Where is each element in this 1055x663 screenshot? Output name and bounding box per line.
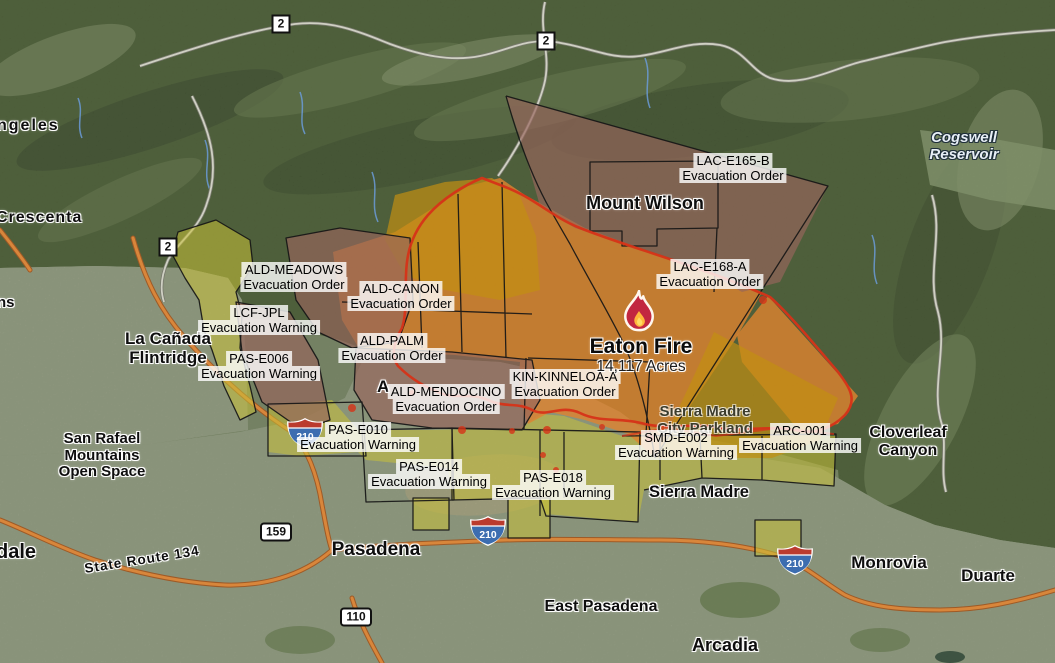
place-label-cogswell-line2: Reservoir: [929, 147, 998, 164]
place-label-crescenta: Crescenta: [0, 209, 82, 227]
place-label-san-rafael-line2: Mountains: [59, 448, 146, 465]
zone-label-pas-e014[interactable]: PAS-E014 Evacuation Warning: [368, 459, 490, 489]
zone-label-lac-e165-b[interactable]: LAC-E165-B Evacuation Order: [679, 153, 786, 183]
place-label-san-rafael-line1: San Rafael: [59, 431, 146, 448]
place-label-san-rafael-line3: Open Space: [59, 464, 146, 481]
zone-label-pas-e018[interactable]: PAS-E018 Evacuation Warning: [492, 470, 614, 500]
zone-label-ald-meadows[interactable]: ALD-MEADOWS Evacuation Order: [240, 262, 347, 292]
zone-label-pas-e010[interactable]: PAS-E010 Evacuation Warning: [297, 422, 419, 452]
shield-i210-2: 210: [469, 515, 507, 547]
fire-marker[interactable]: [620, 290, 658, 337]
zone-label-pas-e006[interactable]: PAS-E006 Evacuation Warning: [198, 351, 320, 381]
flame-icon: [620, 290, 658, 332]
place-label-angeles: ngeles: [0, 117, 60, 135]
place-label-sierra-madre: Sierra Madre: [649, 483, 749, 501]
place-label-cogswell-line1: Cogswell: [929, 130, 998, 147]
place-label-east-pasadena: East Pasadena: [545, 598, 658, 616]
zone-label-ald-mendocino[interactable]: ALD-MENDOCINO Evacuation Order: [388, 384, 505, 414]
shield-i210-3: 210: [776, 544, 814, 576]
zone-label-smd-e002[interactable]: SMD-E002 Evacuation Warning: [615, 430, 737, 460]
fire-acres: 14,117 Acres: [590, 358, 693, 376]
place-label-cloverleaf-line2: Canyon: [869, 442, 946, 460]
shield-sr159: 159: [260, 523, 292, 542]
shield-route2-1: 2: [272, 15, 291, 34]
fire-title: Eaton Fire: [590, 336, 693, 358]
map-canvas[interactable]: 210 210 210 2 2 2 159 110 ngeles Crescen…: [0, 0, 1055, 663]
zone-label-lac-e168-a[interactable]: LAC-E168-A Evacuation Order: [656, 259, 763, 289]
zone-label-arc-001[interactable]: ARC-001 Evacuation Warning: [739, 423, 861, 453]
svg-text:210: 210: [479, 530, 497, 541]
shield-route2-3: 2: [159, 238, 178, 257]
place-label-mount-wilson: Mount Wilson: [586, 193, 704, 213]
place-label-cloverleaf-line1: Cloverleaf: [869, 424, 946, 442]
place-label-duarte: Duarte: [961, 566, 1015, 585]
shield-route2-2: 2: [537, 32, 556, 51]
zone-label-lcf-jpl[interactable]: LCF-JPL Evacuation Warning: [198, 305, 320, 335]
place-label-glendale: dale: [0, 541, 36, 563]
zone-label-ald-palm[interactable]: ALD-PALM Evacuation Order: [338, 333, 445, 363]
fire-label: Eaton Fire 14,117 Acres: [590, 336, 693, 376]
place-label-mountains-partial: ns: [0, 295, 15, 312]
zone-label-ald-canon[interactable]: ALD-CANON Evacuation Order: [347, 281, 454, 311]
place-label-monrovia: Monrovia: [851, 553, 927, 572]
place-label-parkland-line1: Sierra Madre: [657, 404, 753, 421]
place-label-pasadena: Pasadena: [332, 539, 421, 560]
place-label-arcadia: Arcadia: [692, 635, 758, 655]
shield-sr110: 110: [340, 608, 372, 627]
svg-text:210: 210: [786, 559, 804, 570]
